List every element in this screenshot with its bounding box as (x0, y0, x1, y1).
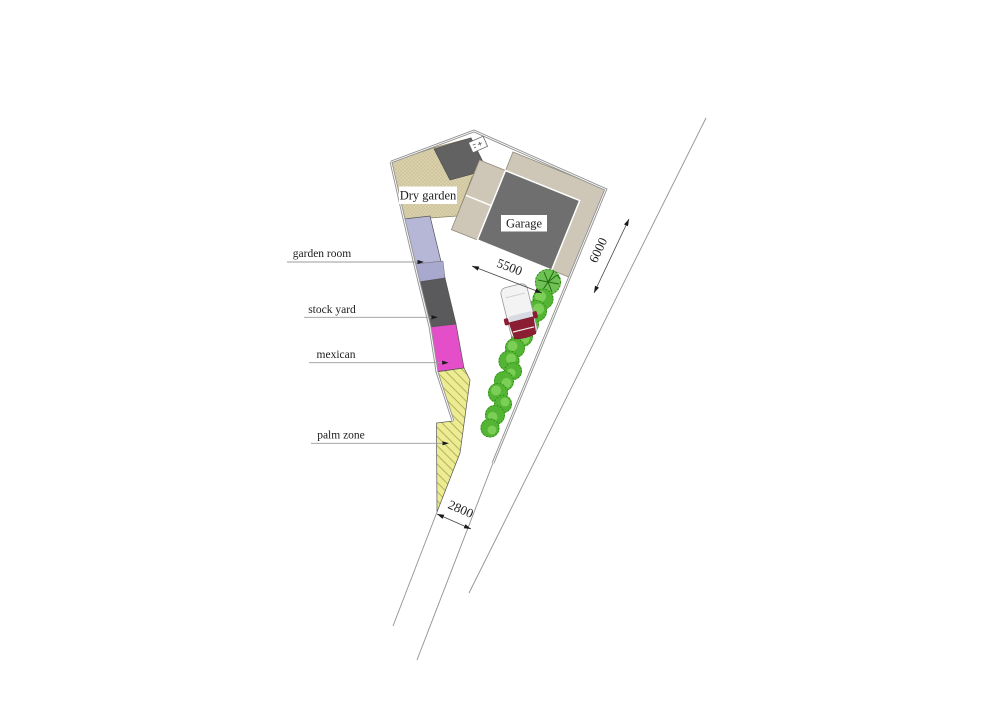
dimension-5500-value: 5500 (495, 255, 525, 278)
dry-garden-tag: Dry garden (399, 187, 457, 205)
garden-site-plan: 5500 6000 2800 garden room stock yard me… (0, 0, 1000, 707)
road-edge-left-extension (417, 463, 493, 660)
kerb-line (393, 512, 437, 626)
garage-label: Garage (506, 217, 543, 231)
dimension-6000: 6000 (586, 219, 629, 293)
stock-yard-label: stock yard (308, 304, 356, 316)
palm-zone-area (436, 368, 470, 512)
garden-room-label: garden room (293, 248, 351, 260)
shrub-icon (481, 419, 500, 438)
garage-tag: Garage (501, 215, 547, 232)
palm-zone-label: palm zone (317, 430, 365, 442)
dimension-6000-value: 6000 (586, 235, 611, 265)
mexican-label: mexican (317, 349, 356, 361)
site-plan-canvas: 5500 6000 2800 garden room stock yard me… (0, 0, 1000, 707)
dimension-2800-value: 2800 (446, 497, 476, 521)
dry-garden-label: Dry garden (400, 189, 457, 203)
dimension-2800: 2800 (437, 497, 476, 529)
